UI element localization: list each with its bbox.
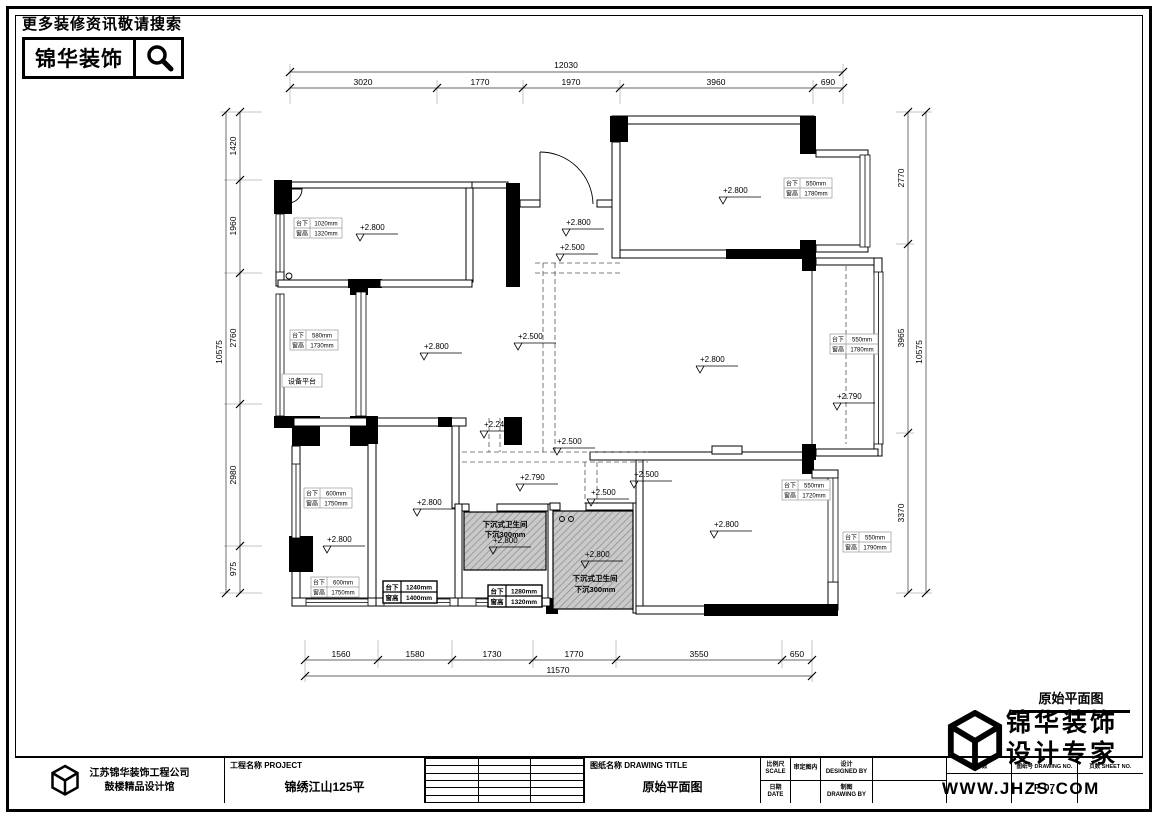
title-block-revision-table [425,758,585,803]
svg-text:1790mm: 1790mm [863,546,886,552]
svg-text:600mm: 600mm [333,581,353,587]
dim-seg: 1970 [562,77,581,87]
review-field: 审定图内 [791,758,821,781]
window-label-bold: 台下1280mm窗高1320mm [488,585,542,607]
svg-text:+2.500: +2.500 [634,470,659,479]
level-marker: +2.800 [710,520,752,538]
drawing-title-value: 原始平面图 [590,778,755,795]
dim-chain-top: 12030 3020 1770 1970 3960 690 [286,60,847,104]
svg-text:1020mm: 1020mm [314,222,337,228]
watermark-brand-line2: 设计专家 [1006,739,1118,770]
svg-text:窗高: 窗高 [292,342,304,350]
svg-text:+2.790: +2.790 [837,392,862,401]
empty-field [873,781,946,804]
svg-text:台下: 台下 [786,180,798,188]
svg-text:台下: 台下 [784,482,796,490]
svg-text:1320mm: 1320mm [314,232,337,238]
svg-text:550mm: 550mm [806,182,826,188]
svg-text:窗高: 窗高 [832,346,844,354]
dim-seg: 1730 [483,649,502,659]
svg-text:1730mm: 1730mm [310,344,333,350]
svg-text:窗高: 窗高 [296,230,308,238]
svg-text:+2.500: +2.500 [591,488,616,497]
dim-total-bottom: 11570 [546,665,569,675]
floor-plan-drawing: 12030 3020 1770 1970 3960 690 1560 1580 … [0,0,1158,818]
svg-text:台下: 台下 [386,583,400,592]
beam-dashed-lines [462,263,846,504]
level-marker: +2.800 [323,535,365,553]
svg-text:580mm: 580mm [312,334,332,340]
empty-field [873,758,946,781]
svg-text:1750mm: 1750mm [331,591,354,597]
svg-text:+2.800: +2.800 [585,550,610,559]
window-label: 台下580mm窗高1730mm [290,330,338,350]
sunken-bath-2-label: 下沉式卫生间 [573,573,618,583]
level-marker: +2.800 [696,355,738,373]
level-marker: +2.800 [356,223,398,241]
dim-seg: 1420 [228,136,238,155]
dim-seg: 2980 [228,465,238,484]
sunken-bathroom-2 [553,511,633,609]
svg-text:+2.800: +2.800 [700,355,725,364]
svg-text:+2.790: +2.790 [520,473,545,482]
drawn-by-field: 制图DRAWING BY [821,781,873,804]
svg-text:550mm: 550mm [852,338,872,344]
watermark-url: WWW.JHZS.COM [942,779,1100,799]
svg-text:台下: 台下 [832,336,844,344]
dim-total-right: 10575 [914,340,924,364]
window-label: 台下550mm窗高1780mm [784,178,832,198]
sunken-bath-2-depth: 下沉300mm [575,584,616,594]
svg-text:窗高: 窗高 [386,593,400,602]
svg-text:台下: 台下 [292,332,304,340]
svg-text:设备平台: 设备平台 [288,377,316,386]
svg-text:+2.800: +2.800 [714,520,739,529]
svg-text:+2.800: +2.800 [327,535,352,544]
dim-seg: 3020 [354,77,373,87]
level-marker: +2.500 [514,332,556,350]
dim-seg: 1580 [406,649,425,659]
svg-text:1400mm: 1400mm [406,595,432,602]
dim-chain-left: 10575 1420 1960 2760 2980 975 [214,108,262,597]
dim-seg: 3550 [690,649,709,659]
svg-text:+2.800: +2.800 [424,342,449,351]
window-label: 台下600mm窗高1750mm [304,488,352,508]
company-branch: 鼓楼精品设计馆 [90,781,190,795]
equipment-platform-label: 设备平台 [282,374,322,387]
project-value: 锦绣江山125平 [230,778,419,795]
svg-text:窗高: 窗高 [784,492,796,500]
scale-field: 比例尺SCALE [761,758,791,781]
title-block-company: 江苏锦华装饰工程公司 鼓楼精品设计馆 [15,758,225,803]
svg-text:窗高: 窗高 [491,597,505,606]
dim-seg: 3965 [896,328,906,347]
level-marker: +2.790 [833,392,875,410]
dim-seg: 690 [821,77,835,87]
dim-seg: 1770 [565,649,584,659]
dim-seg: 650 [790,649,804,659]
dim-seg: 975 [228,562,238,576]
project-label: 工程名称 PROJECT [230,760,419,771]
floor-plan-page: 更多装修资讯敬请搜索 锦华装饰 [0,0,1158,818]
svg-text:窗高: 窗高 [313,589,325,597]
window-label-bold: 台下1240mm窗高1400mm [383,581,437,603]
dim-seg: 1960 [228,216,238,235]
svg-text:台下: 台下 [296,220,308,228]
level-marker: +2.800 [719,186,761,204]
dim-total-top: 12030 [554,60,578,70]
title-block-fields: 比例尺SCALE 审定图内 设计DESIGNED BY 日期DATE 制图DRA… [761,758,947,803]
svg-text:窗高: 窗高 [845,544,857,552]
svg-text:+2.800: +2.800 [417,498,442,507]
watermark-cube-logo-icon [946,710,1004,772]
svg-text:600mm: 600mm [326,492,346,498]
svg-text:台下: 台下 [313,579,325,587]
svg-text:550mm: 550mm [804,484,824,490]
svg-text:1720mm: 1720mm [802,494,825,500]
level-marker: +2.800 [413,498,455,516]
svg-text:1240mm: 1240mm [406,585,432,592]
svg-text:1320mm: 1320mm [511,599,537,606]
level-marker: +2.800 [562,218,604,236]
drawing-title-label: 图纸名称 DRAWING TITLE [590,760,755,771]
company-name: 江苏锦华装饰工程公司 [90,767,190,781]
designed-by-field: 设计DESIGNED BY [821,758,873,781]
sunken-bath-1-label: 下沉式卫生间 [483,519,528,529]
date-field: 日期DATE [761,781,791,804]
level-marker: +2.500 [556,243,598,261]
level-marker: +2.790 [516,473,558,491]
svg-text:1780mm: 1780mm [850,348,873,354]
window-label: 台下600mm窗高1750mm [311,577,359,597]
dim-chain-right: 2770 3965 3370 10575 [896,108,932,597]
svg-text:+2.240: +2.240 [484,420,509,429]
sunken-bath-1-depth: 下沉300mm [485,529,526,539]
svg-text:+2.500: +2.500 [557,437,582,446]
svg-text:窗高: 窗高 [306,500,318,508]
dim-seg: 3370 [896,503,906,522]
svg-text:+2.800: +2.800 [360,223,385,232]
dim-seg: 2770 [896,168,906,187]
svg-text:台下: 台下 [845,534,857,542]
svg-text:1780mm: 1780mm [804,192,827,198]
dim-seg: 1770 [471,77,490,87]
svg-text:台下: 台下 [306,490,318,498]
window-label: 台下550mm窗高1780mm [830,334,878,354]
title-block-drawing: 图纸名称 DRAWING TITLE 原始平面图 [585,758,761,803]
window-label: 台下550mm窗高1720mm [782,480,830,500]
dim-seg: 1560 [332,649,351,659]
dim-total-left: 10575 [214,340,224,364]
window-label: 台下550mm窗高1790mm [843,532,891,552]
svg-text:窗高: 窗高 [786,190,798,198]
window-label: 台下1020mm窗高1320mm [294,218,342,238]
svg-text:+2.500: +2.500 [518,332,543,341]
level-marker: +2.800 [420,342,462,360]
svg-text:+2.800: +2.800 [566,218,591,227]
watermark-brand-line1: 锦华装饰 [1006,708,1118,739]
svg-text:台下: 台下 [491,587,505,596]
empty-field [791,781,821,804]
watermark-brand: 锦华装饰 设计专家 [1006,708,1118,770]
dim-seg: 2760 [228,328,238,347]
svg-text:1280mm: 1280mm [511,589,537,596]
svg-text:1750mm: 1750mm [324,502,347,508]
dim-chain-bottom: 1560 1580 1730 1770 3550 650 11570 [301,640,816,682]
svg-text:550mm: 550mm [865,536,885,542]
svg-text:+2.500: +2.500 [560,243,585,252]
dim-seg: 3960 [707,77,726,87]
company-cube-logo-icon [50,764,80,797]
svg-text:+2.800: +2.800 [723,186,748,195]
title-block-project: 工程名称 PROJECT 锦绣江山125平 [225,758,425,803]
